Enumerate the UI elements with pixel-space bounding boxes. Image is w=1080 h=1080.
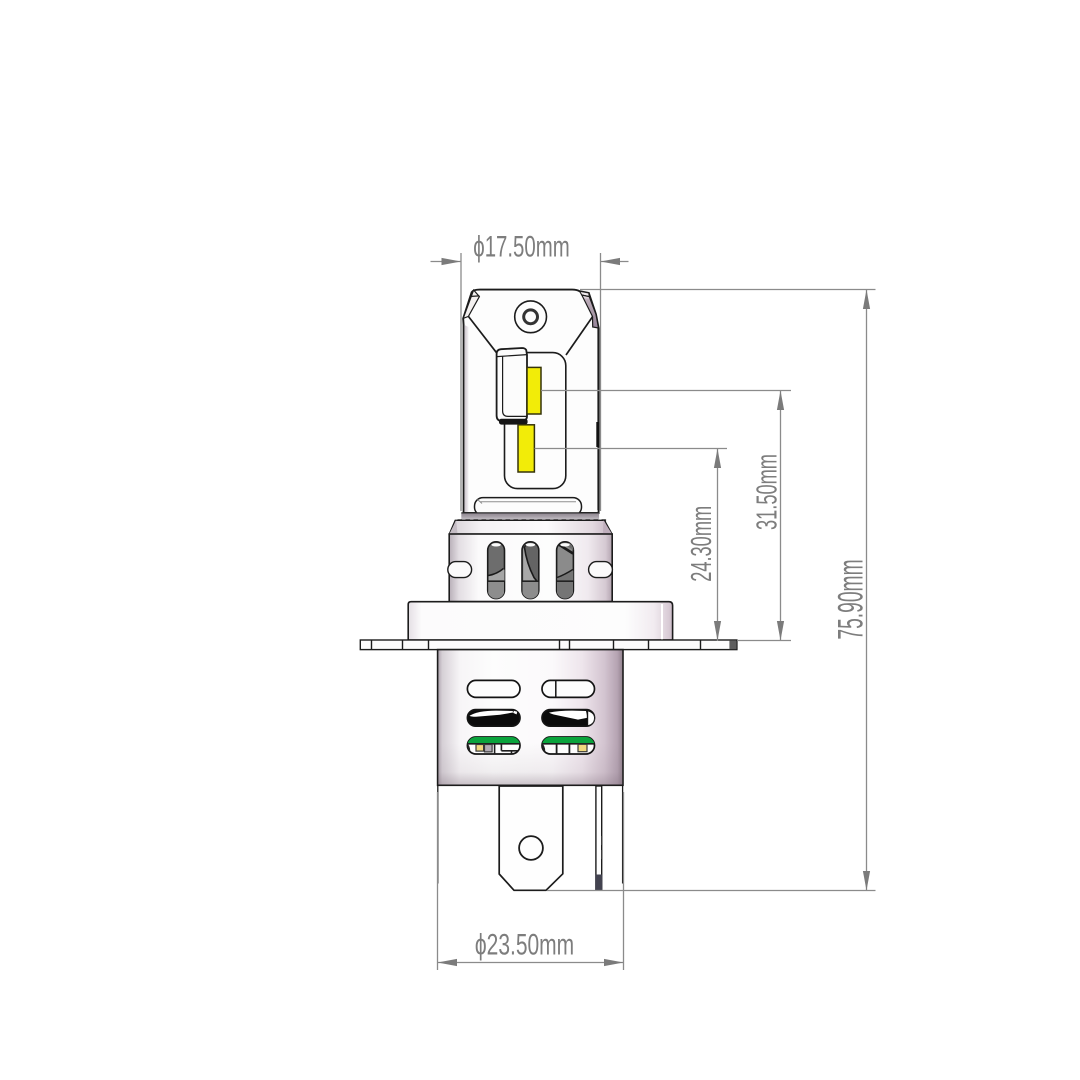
svg-text:31.50mm: 31.50mm bbox=[751, 454, 783, 530]
svg-text:24.30mm: 24.30mm bbox=[686, 506, 718, 582]
svg-text:ϕ23.50mm: ϕ23.50mm bbox=[475, 929, 574, 961]
svg-text:ϕ17.50mm: ϕ17.50mm bbox=[473, 231, 569, 264]
svg-text:75.90mm: 75.90mm bbox=[830, 559, 870, 639]
